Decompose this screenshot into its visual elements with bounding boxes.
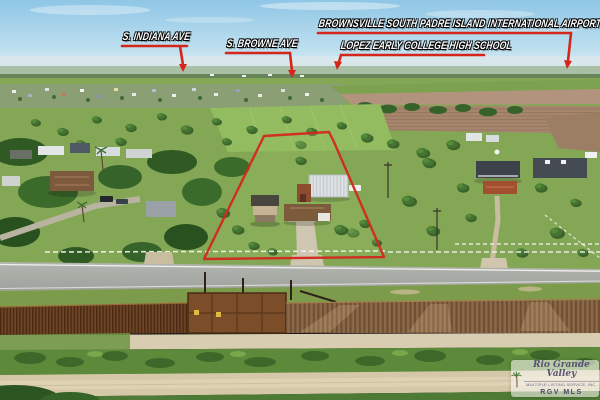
left-gray-roof-house [146,201,176,217]
right-house-dark-roof [474,161,522,185]
landmark-label-airport: Brownsville South Padre Island Internati… [318,19,600,30]
watermark-brokerage: Rio Grande Valley [524,361,599,381]
fence-gate [188,293,286,333]
front-white-fence [45,251,385,252]
right-driveway-apron [480,258,508,269]
street-label-browne: S. Browne Ave [226,39,298,50]
left-white-shed [2,176,20,186]
left-driveway-apron [144,252,174,264]
watermark-subtitle: Multiple Listing Service, Inc. [524,381,599,387]
right-house-red-roof [483,181,517,194]
brown-roof-house [283,204,331,226]
gate-sign [194,310,199,315]
stage: S. Indiana Ave S. Browne Ave Brownsville… [0,0,600,400]
foreground [0,333,600,400]
two-story-house [250,195,280,227]
gate-sign-2 [216,312,221,317]
sky [0,0,600,72]
watermark-mls: RGV MLS [524,389,599,397]
street-label-indiana: S. Indiana Ave [122,32,191,43]
palm-tree-icon [511,368,522,390]
landmark-label-school: Lopez Early College High School [340,41,512,52]
left-brown-roof-house [48,171,96,197]
aerial-photo [0,0,600,400]
mls-watermark: Rio Grande Valley Multiple Listing Servi… [511,360,599,397]
fence-slats-left [0,303,188,335]
